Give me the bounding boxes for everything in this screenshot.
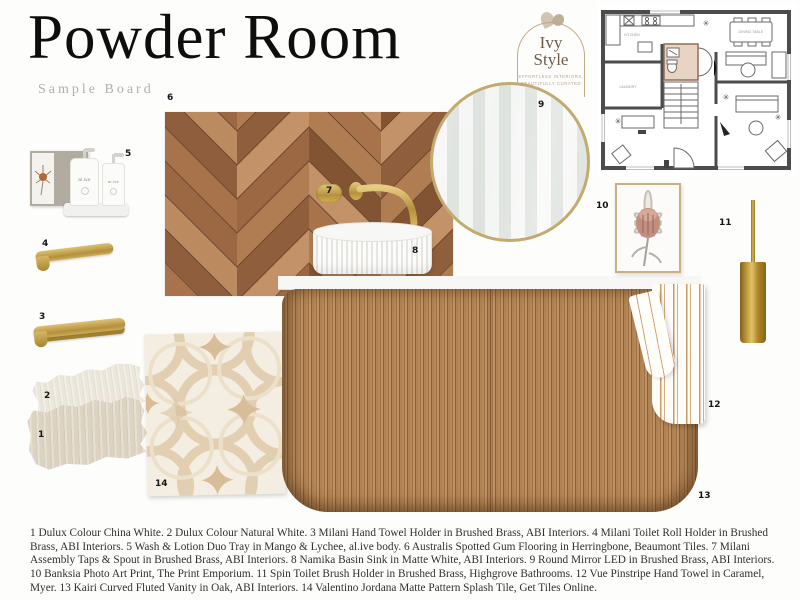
page-subtitle: Sample Board — [38, 82, 154, 98]
plan-label-kitchen: KITCHEN — [624, 33, 640, 37]
item-number-5: 5 — [125, 149, 131, 159]
svg-text:✳: ✳ — [723, 93, 730, 102]
flooring-band — [237, 112, 309, 296]
hand-towel-holder-image — [33, 315, 129, 353]
plan-label-laundry: LAUNDRY — [619, 85, 637, 89]
flooring-band — [165, 112, 237, 296]
item-number-12: 12 — [708, 400, 721, 410]
item-number-14: 14 — [155, 479, 168, 489]
bottle-emblem — [81, 187, 89, 195]
bottle-label: al.ive — [71, 177, 98, 182]
logo-name-line2: Style — [503, 51, 599, 68]
pump-spout — [114, 153, 124, 157]
item-number-9: 9 — [538, 100, 544, 110]
svg-text:✳: ✳ — [615, 117, 622, 126]
item-list-caption: 1 Dulux Colour China White. 2 Dulux Colo… — [30, 527, 778, 595]
basin-rim — [313, 222, 432, 242]
item-number-2: 2 — [44, 391, 50, 401]
floor-plan-image: ✳✳ ✳✳ KITCHEN LAUNDRY DINING TABLE — [598, 4, 796, 176]
item-number-7: 7 — [326, 186, 332, 196]
toilet-brush-holder-image — [740, 262, 766, 343]
svg-text:✳: ✳ — [703, 19, 710, 28]
item-number-3: 3 — [39, 312, 45, 322]
item-number-4: 4 — [42, 239, 48, 249]
svg-text:✳: ✳ — [775, 113, 782, 122]
logo-name-line1: Ivy — [503, 34, 599, 51]
holder-cap — [34, 331, 49, 348]
item-number-6: 6 — [167, 93, 173, 103]
item-number-10: 10 — [596, 201, 609, 211]
wash-bottle-image: al.ive — [70, 158, 99, 206]
wash-duo-box-panel — [32, 153, 54, 204]
splash-tile-image — [144, 332, 285, 497]
page-title: Powder Room — [28, 6, 401, 69]
item-number-13: 13 — [698, 491, 711, 501]
bottle-label: al.ive — [103, 179, 124, 184]
item-number-1: 1 — [38, 430, 44, 440]
round-mirror-image — [430, 82, 590, 242]
logo-tagline-line1: EFFORTLESS INTERIORS, — [503, 74, 599, 79]
holder-cap — [36, 255, 51, 271]
bottle-emblem — [110, 188, 117, 195]
vanity-countertop — [278, 276, 700, 290]
art-print-image — [615, 183, 681, 273]
lotion-bottle-image: al.ive — [102, 163, 125, 206]
sample-board: Powder Room Sample Board Ivy Style EFFOR… — [0, 0, 800, 600]
item-number-11: 11 — [719, 218, 732, 228]
plan-label-dining: DINING TABLE — [739, 30, 764, 34]
pump-spout — [85, 148, 95, 152]
toilet-brush-handle — [751, 200, 755, 264]
item-number-8: 8 — [412, 246, 418, 256]
